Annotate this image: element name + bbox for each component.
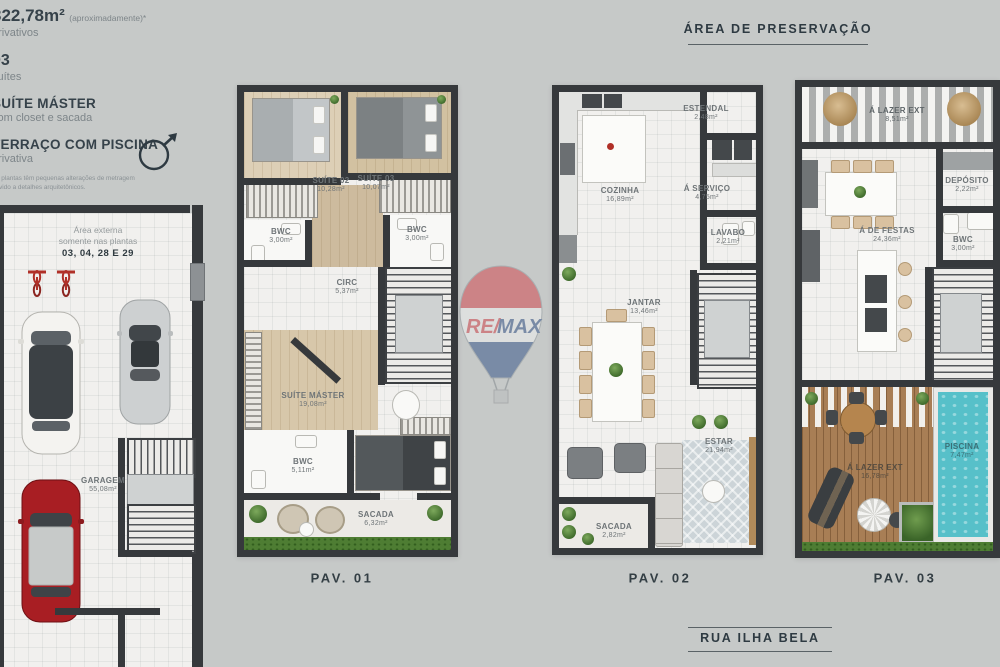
area-note: (aproximadamente)*: [69, 13, 146, 23]
room-label-lavabo: LAVABO2,21m²: [711, 228, 745, 246]
bicycle-icon: [55, 265, 77, 297]
sink: [295, 435, 317, 448]
wall: [237, 85, 244, 557]
wall: [936, 260, 1000, 267]
grass-strip: [244, 537, 451, 550]
sink: [865, 308, 887, 332]
street-line-top: [688, 627, 832, 628]
deck-chair: [826, 410, 838, 425]
deck-chair: [875, 410, 887, 425]
room-label-estendal: ESTENDAL2,48m²: [683, 104, 729, 122]
toilet: [430, 243, 444, 261]
deck-chair: [849, 392, 864, 404]
bed-suite03: [356, 97, 442, 159]
bed-master: [355, 435, 451, 491]
room-label-suite03: SUÍTE 0310,07m²: [357, 174, 394, 192]
wall: [237, 85, 458, 92]
plant: [427, 505, 443, 521]
disclaimer-text: As plantas têm pequenas alterações de me…: [0, 175, 142, 192]
floorplan-pav-02: ESTENDAL2,48m² COZINHA16,89m² Á SERVIÇO4…: [552, 85, 763, 555]
wardrobe: [246, 182, 318, 218]
umbrella: [857, 498, 891, 532]
wall: [118, 438, 125, 550]
room-label-suite-master: SUÍTE MÁSTER19,08m²: [281, 391, 344, 409]
deck-chair: [849, 432, 864, 444]
wall: [795, 80, 1000, 87]
area-value: 322,78m²: [0, 6, 65, 25]
wall: [993, 80, 1000, 558]
feature1-caption: com closet e sacada: [0, 112, 202, 124]
wall: [55, 608, 160, 615]
swimming-pool: [938, 392, 988, 537]
room-label-sacada1: SACADA6,32m²: [358, 510, 394, 528]
wall: [378, 267, 385, 385]
plant: [714, 415, 728, 429]
wall: [795, 380, 1000, 387]
svg-text:MAX: MAX: [497, 316, 543, 338]
area-caption: privativos: [0, 27, 202, 39]
area-line: 322,78m² (aproximadamente)*: [0, 6, 202, 26]
wicker-chair: [315, 506, 345, 534]
stool: [898, 328, 912, 342]
floorplan-sheet: { "colors": { "background": "#c6c9c8", "…: [0, 0, 1000, 667]
plant: [562, 525, 576, 539]
wall: [118, 550, 192, 557]
chair: [831, 216, 850, 229]
closet-master: [245, 332, 262, 430]
wall: [802, 142, 993, 149]
wall: [552, 85, 559, 555]
remax-balloon-logo: RE/ MAX: [453, 262, 549, 414]
toilet: [943, 214, 959, 234]
chair: [606, 309, 627, 322]
garage-gate: [190, 263, 205, 301]
room-label-garagem: GARAGEM 55,08m²: [81, 476, 125, 494]
preservation-area-header: ÁREA DE PRESERVAÇÃO: [684, 22, 873, 36]
room-label-bwc-right: BWC3,00m²: [405, 225, 429, 243]
stool: [898, 295, 912, 309]
chair: [642, 375, 655, 394]
room-label-piscina: PISCINA7,47m²: [945, 442, 980, 460]
side-table: [299, 522, 314, 537]
chair: [642, 327, 655, 346]
wall: [925, 267, 932, 380]
chair: [853, 160, 872, 173]
cooktop: [865, 275, 887, 303]
wall: [707, 210, 763, 217]
coffee-table: [702, 480, 725, 503]
room-label-lazer-deck: Á LAZER EXT16,78m²: [847, 463, 903, 481]
stair-landing: [704, 300, 750, 358]
silver-car: [117, 297, 173, 427]
wall: [795, 80, 802, 558]
floorplan-pav-03: Á LAZER EXT8,51m² DEPÓSITO2,22m² Á DE FE…: [795, 80, 1000, 558]
suites-caption: suítes: [0, 71, 202, 83]
room-label-servico: Á SERVIÇO4,75m²: [684, 184, 731, 202]
chair: [642, 399, 655, 418]
fridge: [559, 235, 577, 263]
bed-suite02: [252, 98, 330, 162]
wall: [936, 149, 943, 260]
room-label-jantar: JANTAR13,46m²: [627, 298, 661, 316]
wall: [648, 504, 655, 548]
washer: [712, 140, 732, 160]
plant: [692, 415, 706, 429]
wall: [237, 550, 458, 557]
wall: [795, 551, 1000, 558]
potted-tree: [947, 92, 981, 126]
wall: [552, 548, 763, 555]
wall: [936, 206, 1000, 213]
wall: [0, 213, 4, 667]
room-label-bwc-left: BWC3,00m²: [269, 227, 293, 245]
planter-box: [899, 502, 937, 544]
garage-stairs-upper: [127, 438, 196, 478]
room-label-lazer-top: Á LAZER EXT8,51m²: [869, 106, 925, 124]
red-car: [18, 477, 84, 625]
potted-tree: [823, 92, 857, 126]
grass-strip: [802, 542, 993, 551]
room-label-deposito: DEPÓSITO2,22m²: [945, 176, 989, 194]
stove: [560, 143, 575, 175]
counter: [712, 163, 758, 177]
wall: [552, 85, 763, 92]
wall: [244, 493, 380, 500]
wall: [417, 493, 451, 500]
dryer: [734, 140, 752, 160]
plant: [582, 533, 594, 545]
sink-counter: [967, 212, 995, 230]
garage-note: Área externa somente nas plantas 03, 04,…: [59, 225, 137, 261]
stair-landing: [127, 474, 194, 506]
garage-note-line3: 03, 04, 28 E 29: [62, 248, 134, 259]
wall: [707, 133, 763, 140]
hall-floor: [312, 185, 383, 267]
pav2-label: PAV. 02: [629, 571, 692, 586]
room-label-bwc3: BWC3,00m²: [951, 235, 975, 253]
wall: [347, 430, 354, 493]
chair: [579, 327, 592, 346]
kitchen-sink: [604, 94, 622, 108]
stair-landing: [940, 293, 982, 353]
north-compass-icon: [136, 131, 182, 173]
toilet: [392, 390, 420, 420]
counter: [802, 160, 818, 208]
feature1-title: SUÍTE MÁSTER: [0, 96, 202, 111]
plant: [916, 392, 929, 405]
street-line-bottom: [688, 651, 832, 652]
room-label-bwc-master: BWC5,11m²: [291, 457, 314, 475]
room-label-sacada2: SACADA2,82m²: [596, 522, 632, 540]
wall: [305, 220, 312, 267]
plant: [437, 95, 446, 104]
room-label-circ: CIRC5,37m²: [335, 278, 359, 296]
plant: [330, 95, 339, 104]
toilet: [251, 470, 266, 489]
room-label-estar: ESTAR21,94m²: [705, 437, 733, 455]
preservation-underline: [688, 44, 868, 45]
plant: [805, 392, 818, 405]
kitchen-island: [582, 115, 646, 183]
pav1-label: PAV. 01: [311, 571, 374, 586]
street-header: RUA ILHA BELA: [700, 631, 820, 645]
wall: [756, 85, 763, 555]
plant: [249, 505, 267, 523]
room-label-festas: Á DE FESTAS24,36m²: [859, 226, 915, 244]
floorplan-pav-01: SUÍTE 0210,28m² SUÍTE 0310,07m² BWC3,00m…: [237, 85, 458, 557]
wall: [0, 205, 190, 213]
stool: [898, 262, 912, 276]
wall: [118, 615, 125, 667]
sofa: [655, 443, 683, 547]
counter: [559, 92, 700, 111]
chair: [579, 375, 592, 394]
plant: [562, 507, 576, 521]
counter: [802, 230, 820, 282]
garage-stairs-lower: [127, 504, 196, 554]
room-label-suite02: SUÍTE 0210,28m²: [312, 176, 349, 194]
chair: [875, 160, 894, 173]
garage-note-line2: somente nas plantas: [59, 236, 137, 246]
chair: [579, 351, 592, 370]
wall: [559, 497, 655, 504]
garage-note-line1: Área externa: [74, 225, 123, 235]
wall: [244, 260, 305, 267]
chair: [579, 399, 592, 418]
chair: [831, 160, 850, 173]
decor: [607, 143, 614, 150]
master-floor: [244, 330, 378, 430]
plant: [562, 267, 576, 281]
bicycle-icon: [26, 265, 48, 297]
shelf: [943, 152, 993, 170]
wall: [383, 215, 390, 267]
wall: [707, 263, 763, 270]
sideboard: [749, 437, 756, 545]
stair-landing: [395, 295, 443, 353]
kitchen-sink: [582, 94, 602, 108]
chair: [642, 351, 655, 370]
white-car: [18, 309, 84, 457]
plant: [854, 186, 866, 198]
armchair: [614, 443, 646, 473]
wall: [341, 92, 348, 180]
plant: [609, 363, 623, 377]
armchair: [567, 447, 603, 479]
sacada-floor: [244, 500, 451, 537]
room-label-cozinha: COZINHA16,89m²: [601, 186, 640, 204]
suites-value: 03: [0, 52, 202, 70]
pav3-label: PAV. 03: [874, 571, 937, 586]
floorplan-garage: Área externa somente nas plantas 03, 04,…: [0, 205, 203, 667]
wall: [690, 270, 697, 385]
